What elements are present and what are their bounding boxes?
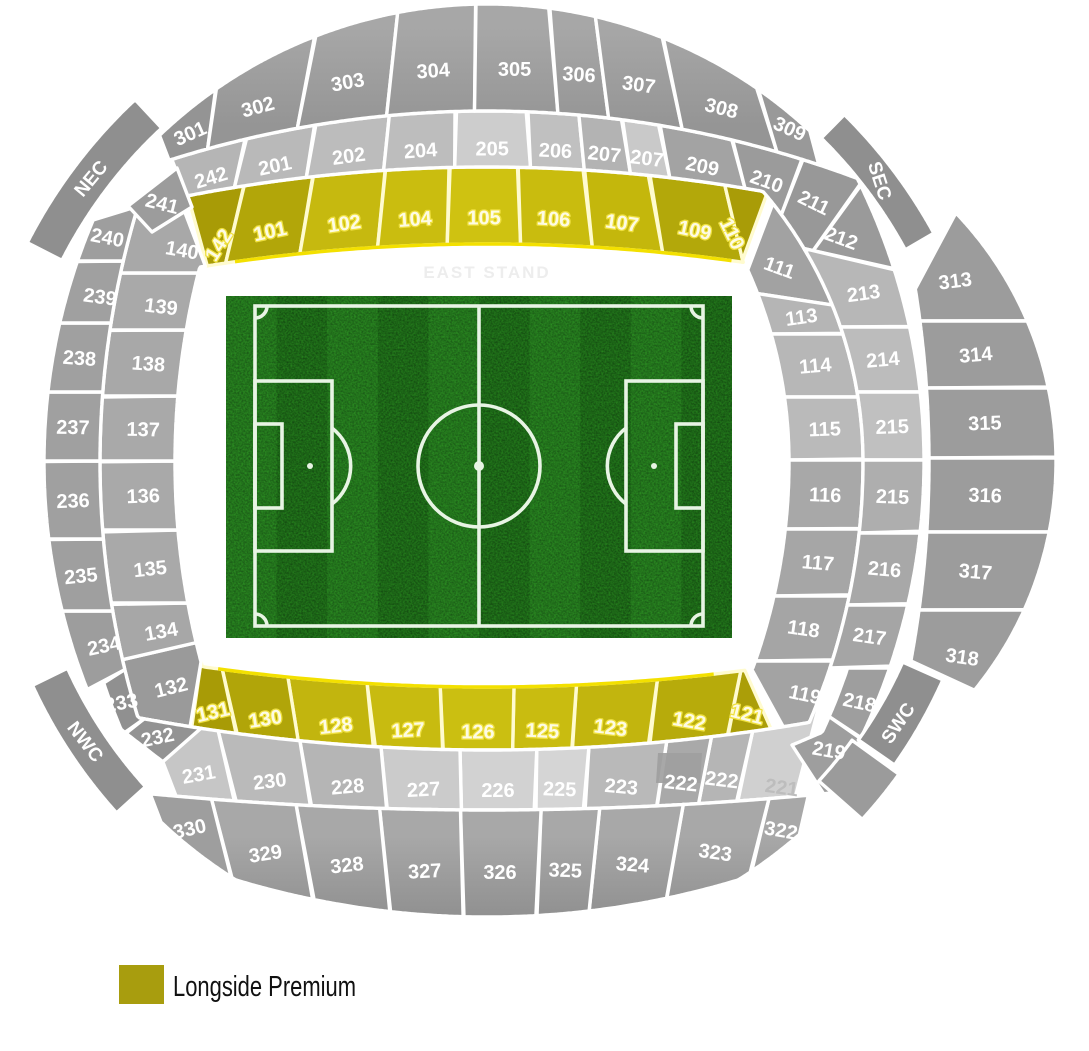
svg-text:327: 327 (408, 860, 442, 884)
svg-text:117: 117 (801, 551, 835, 576)
svg-text:304: 304 (416, 59, 452, 83)
svg-text:236: 236 (56, 490, 90, 513)
svg-text:123: 123 (593, 715, 629, 741)
svg-text:317: 317 (958, 560, 993, 585)
svg-text:127: 127 (391, 719, 425, 743)
svg-text:107: 107 (604, 210, 640, 236)
svg-text:323: 323 (697, 840, 733, 866)
svg-text:125: 125 (525, 720, 559, 744)
svg-text:116: 116 (809, 484, 842, 507)
svg-text:139: 139 (143, 294, 179, 320)
svg-text:326: 326 (483, 862, 516, 884)
svg-text:237: 237 (56, 417, 90, 440)
svg-text:207: 207 (629, 146, 665, 172)
svg-text:138: 138 (131, 352, 166, 376)
svg-text:114: 114 (798, 354, 833, 379)
svg-text:206: 206 (538, 140, 572, 164)
svg-text:215: 215 (875, 416, 909, 439)
svg-text:213: 213 (846, 281, 882, 307)
svg-text:324: 324 (615, 853, 651, 878)
svg-text:102: 102 (326, 211, 362, 237)
svg-text:104: 104 (398, 208, 434, 232)
svg-text:221: 221 (764, 775, 800, 801)
svg-text:226: 226 (481, 780, 514, 802)
svg-text:216: 216 (867, 558, 902, 583)
svg-text:316: 316 (968, 485, 1002, 508)
svg-text:115: 115 (808, 418, 841, 441)
svg-text:204: 204 (403, 139, 439, 163)
svg-text:215: 215 (875, 486, 909, 509)
svg-text:137: 137 (126, 419, 160, 442)
svg-text:328: 328 (329, 853, 364, 878)
svg-text:202: 202 (331, 144, 367, 170)
svg-text:222: 222 (704, 768, 740, 794)
svg-text:214: 214 (865, 348, 901, 373)
svg-text:305: 305 (498, 59, 531, 81)
svg-text:325: 325 (548, 859, 582, 882)
svg-text:207: 207 (587, 142, 622, 167)
svg-text:217: 217 (851, 624, 887, 650)
svg-text:136: 136 (126, 485, 160, 508)
svg-text:230: 230 (252, 769, 288, 795)
svg-text:118: 118 (786, 616, 821, 642)
svg-text:235: 235 (63, 564, 98, 589)
svg-text:306: 306 (562, 63, 597, 87)
svg-text:228: 228 (330, 775, 365, 800)
svg-text:315: 315 (968, 412, 1002, 435)
svg-text:318: 318 (944, 645, 980, 671)
svg-text:222: 222 (663, 771, 698, 796)
svg-text:EAST STAND: EAST STAND (423, 263, 550, 282)
svg-text:223: 223 (604, 775, 639, 800)
svg-text:113: 113 (784, 305, 819, 331)
svg-text:106: 106 (536, 207, 571, 231)
svg-text:128: 128 (318, 714, 353, 739)
svg-text:227: 227 (406, 778, 440, 802)
svg-text:135: 135 (132, 557, 167, 582)
svg-text:Longside Premium: Longside Premium (173, 971, 356, 1003)
svg-text:126: 126 (461, 721, 494, 743)
svg-text:205: 205 (476, 139, 509, 161)
svg-text:314: 314 (958, 343, 994, 368)
svg-text:225: 225 (543, 778, 577, 801)
svg-text:307: 307 (621, 72, 657, 98)
svg-text:105: 105 (467, 207, 500, 229)
svg-text:313: 313 (937, 269, 973, 295)
svg-text:239: 239 (82, 284, 118, 310)
svg-text:238: 238 (62, 347, 97, 371)
